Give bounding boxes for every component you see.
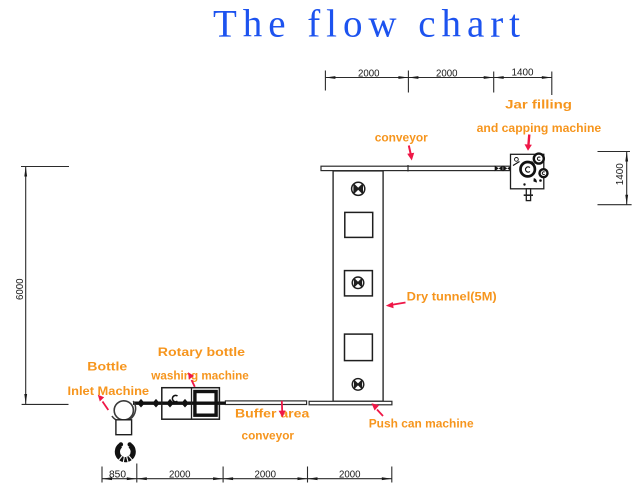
svg-text:and capping machine: and capping machine [477, 121, 602, 135]
svg-text:850: 850 [109, 470, 126, 481]
svg-text:2000: 2000 [339, 470, 361, 481]
svg-text:2000: 2000 [255, 470, 277, 481]
svg-text:2000: 2000 [169, 470, 191, 481]
svg-text:conveyor: conveyor [375, 130, 428, 144]
svg-text:1400: 1400 [512, 68, 534, 79]
svg-text:Rotary bottle: Rotary bottle [158, 345, 246, 359]
svg-text:Inlet Machine: Inlet Machine [68, 384, 150, 398]
svg-text:2000: 2000 [436, 69, 458, 80]
svg-text:2000: 2000 [358, 69, 380, 80]
svg-text:Jar filling: Jar filling [505, 98, 572, 112]
svg-text:1400: 1400 [615, 163, 626, 185]
svg-text:Buffer area: Buffer area [235, 407, 310, 421]
svg-text:Push can machine: Push can machine [369, 416, 474, 430]
svg-text:6000: 6000 [15, 278, 26, 300]
svg-text:Bottle: Bottle [87, 360, 127, 374]
svg-text:Dry tunnel(5M): Dry tunnel(5M) [407, 290, 497, 304]
svg-text:washing machine: washing machine [150, 368, 249, 382]
svg-text:conveyor: conveyor [242, 429, 295, 443]
